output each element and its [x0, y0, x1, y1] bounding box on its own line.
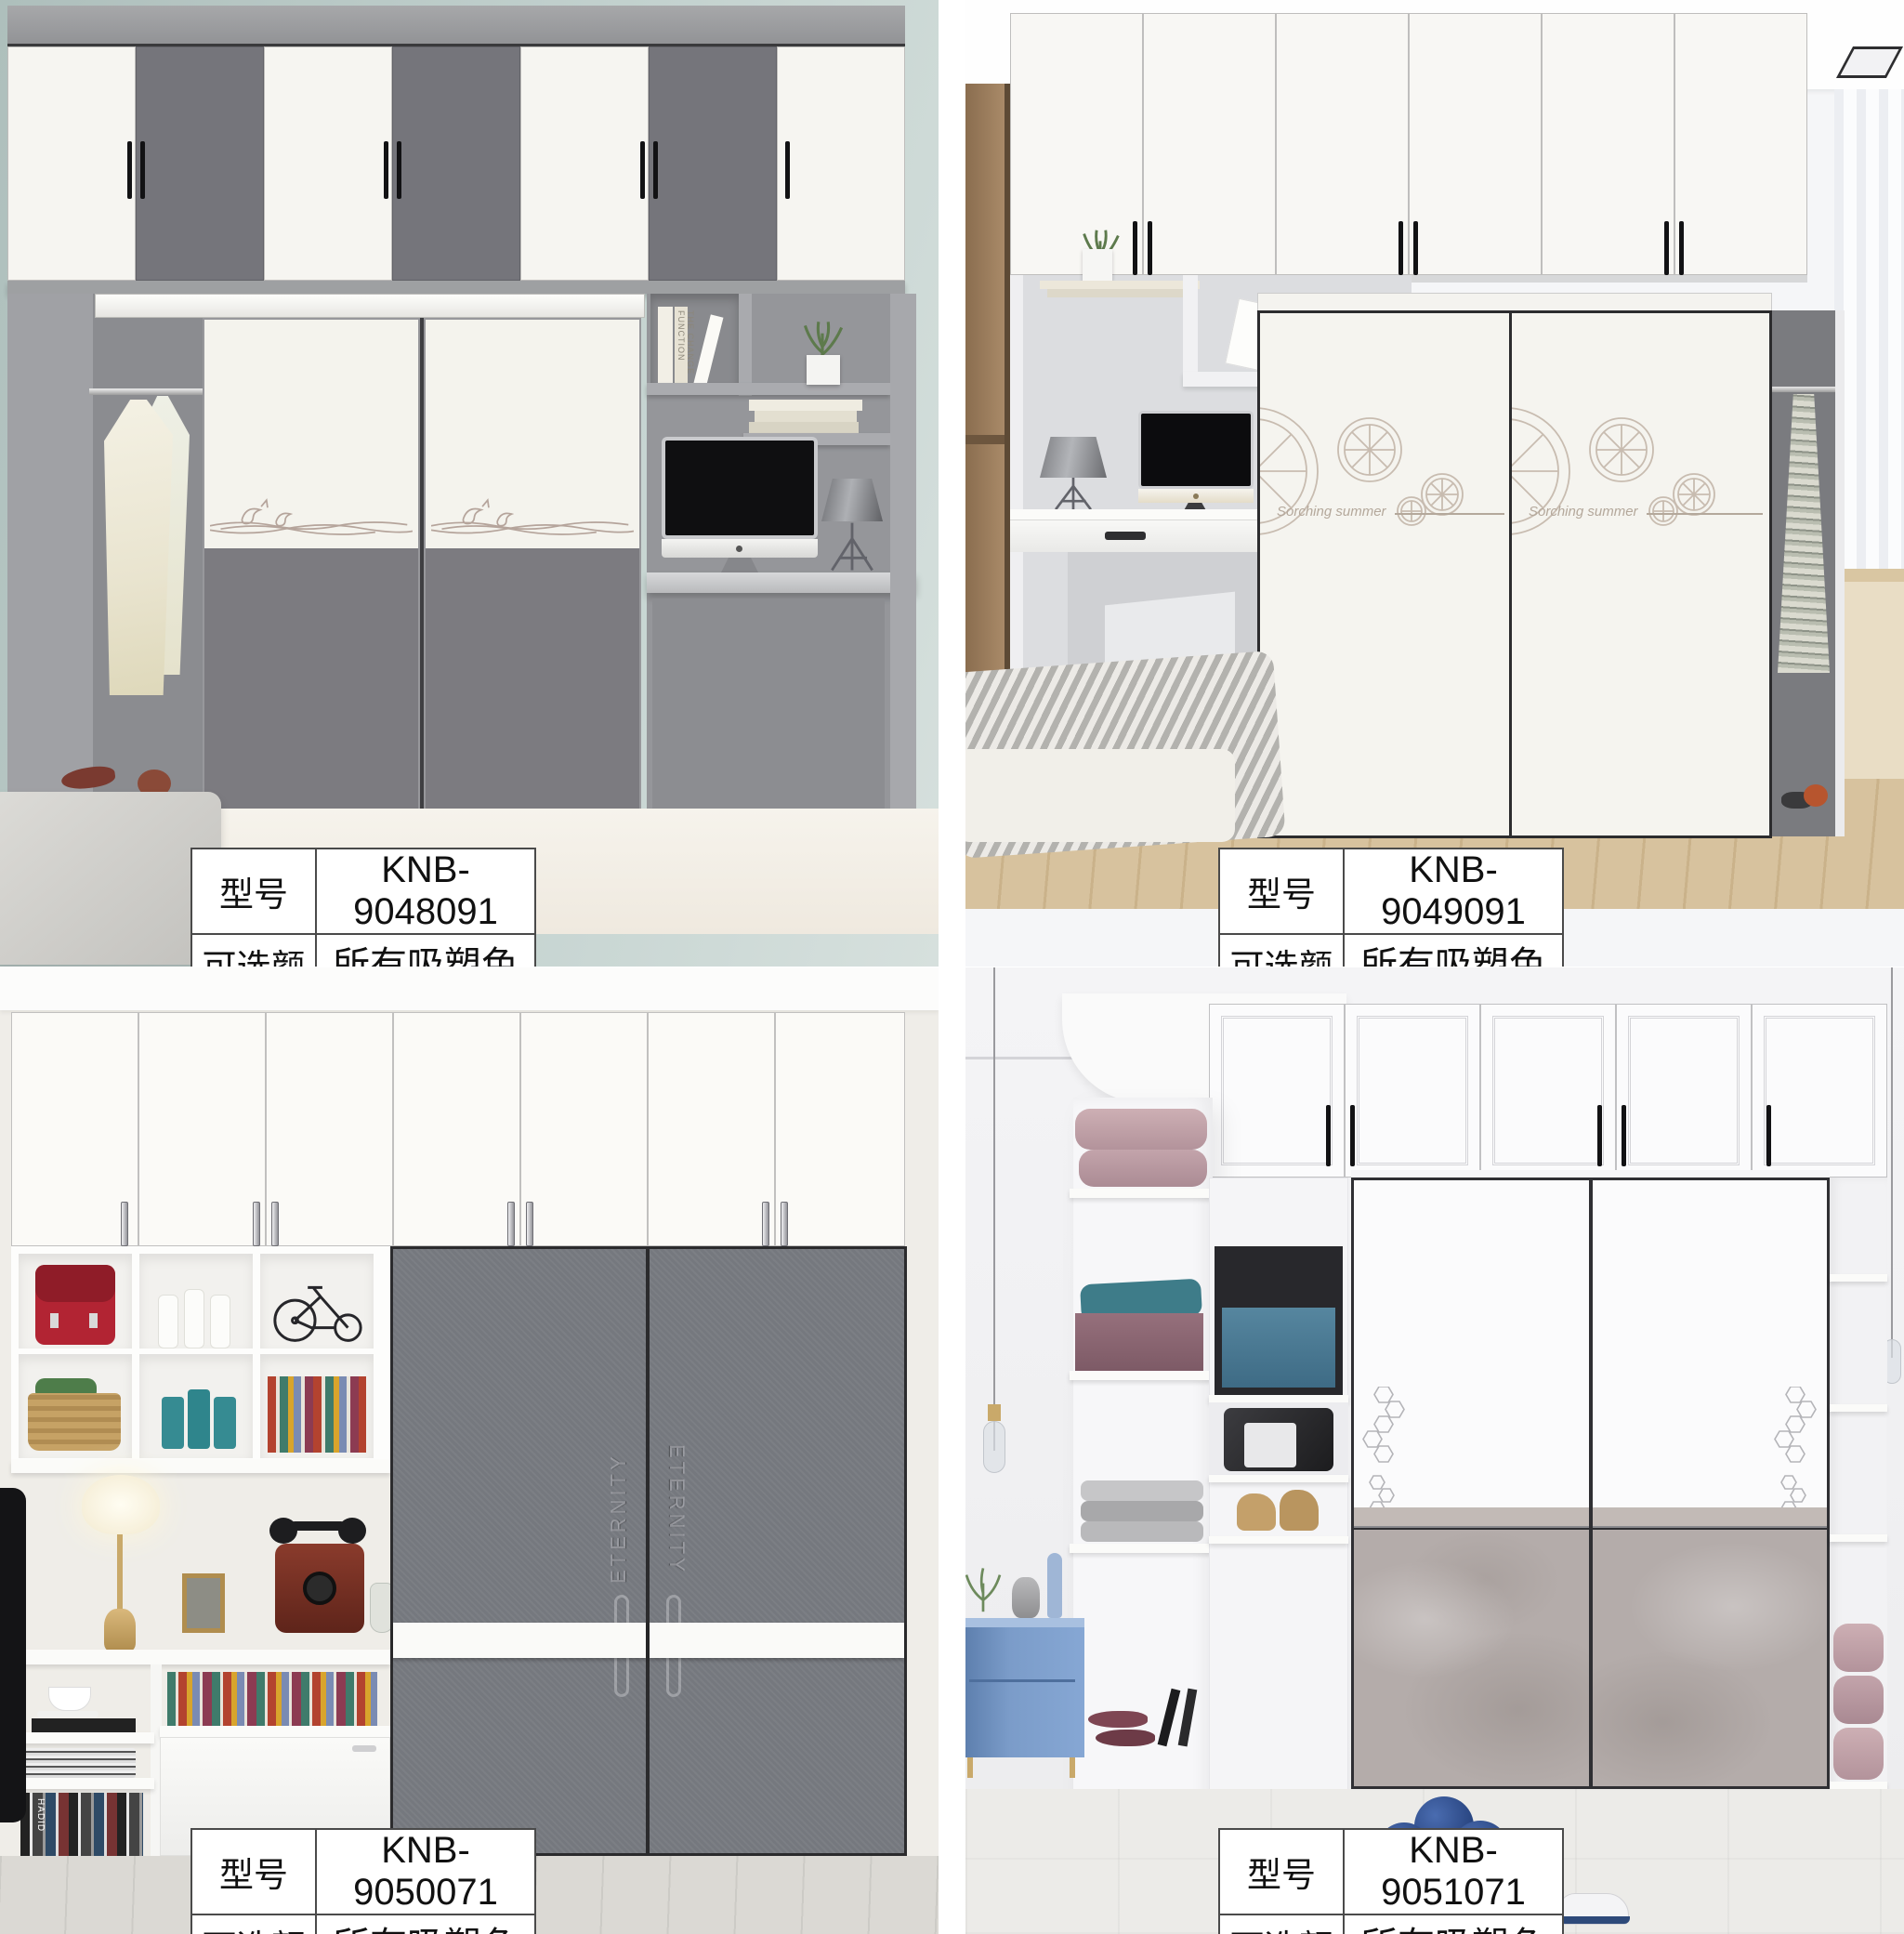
telephone-body — [275, 1544, 364, 1633]
q2-shelf-divider — [1183, 275, 1198, 387]
q4-right-board — [1830, 1782, 1887, 1789]
q3-cubby — [139, 1254, 253, 1349]
q2-upper-door — [1542, 13, 1674, 275]
q4-sliding-door-left — [1354, 1180, 1589, 1786]
pillow — [1833, 1728, 1884, 1780]
q3-cubby — [260, 1254, 374, 1349]
q1-bed — [0, 792, 221, 965]
q1-cornice — [7, 6, 905, 46]
loafer-shoe — [1096, 1730, 1155, 1746]
q2-side-desk-top — [1837, 569, 1904, 582]
vase — [1012, 1577, 1040, 1618]
desk-lamp-legs — [1042, 478, 1105, 511]
table-lamp-shade — [82, 1475, 160, 1534]
q3-unit-bottom-board — [11, 1460, 390, 1473]
q4-tower-board — [1070, 1371, 1213, 1380]
q1-shelf-board — [647, 383, 890, 395]
q3-upper-door — [648, 1012, 775, 1246]
sneaker — [1558, 1893, 1629, 1925]
heel-shoe — [1237, 1493, 1276, 1531]
book — [658, 307, 673, 385]
q3-sliding-door-right: ETERNITY — [650, 1249, 904, 1853]
door-caption-line — [1395, 513, 1504, 515]
q1-side-panel-right — [890, 294, 916, 814]
apple-logo-icon — [1193, 493, 1199, 499]
q2-bed-sheet — [965, 749, 1235, 842]
spec-table-4: 型号 KNB-9051071 可选颜色 所有吸塑色卡 — [1218, 1828, 1564, 1934]
door-concrete-panel — [1354, 1530, 1589, 1786]
door-handle-icon — [1148, 221, 1152, 275]
q1-rug — [595, 820, 939, 929]
spec-model-label: 型号 — [1219, 849, 1344, 934]
spec-model-value: KNB-9051071 — [1344, 1829, 1563, 1914]
pillow — [1833, 1676, 1884, 1724]
door-inner-frame — [1221, 1016, 1333, 1165]
q2-shoe — [1804, 784, 1828, 807]
magazine-stack — [24, 1748, 136, 1778]
q2-side-desk — [1843, 582, 1904, 779]
door-inner-frame — [1764, 1016, 1875, 1165]
door-handle-icon — [1597, 1105, 1602, 1166]
desk-lamp-shade — [1040, 437, 1107, 478]
q1-door-gray-panel — [204, 548, 418, 823]
q2-upper-door — [1143, 13, 1276, 275]
door-handle-icon — [653, 141, 658, 199]
q4-column-board — [1209, 1536, 1348, 1544]
spec-table-1: 型号 KNB-9048091 可选颜色 所有吸塑色卡 — [190, 848, 536, 967]
nightstand-leg — [1070, 1757, 1075, 1778]
pendant-wire — [993, 967, 995, 1451]
imac-chin — [662, 539, 818, 558]
q1-book-cubby: THE CHANGE FUNCTION — [650, 294, 739, 385]
nightstand-leg — [967, 1757, 973, 1778]
door-handle-icon — [397, 141, 401, 199]
q3-shelf-board — [160, 1726, 390, 1737]
q4-column-board — [1209, 1395, 1348, 1402]
vase — [158, 1295, 178, 1349]
door-handle-icon — [640, 141, 645, 199]
door-caption-line — [1647, 513, 1763, 515]
door-inner-frame — [1492, 1016, 1604, 1165]
q1-upper-door — [264, 46, 392, 281]
door-handle-icon — [1398, 221, 1403, 275]
q4-upper-door — [1480, 1004, 1616, 1178]
door-caption: Sorching summer — [1277, 504, 1386, 520]
door-handle-icon — [1622, 1105, 1626, 1166]
q3-cubby — [19, 1254, 132, 1349]
citrus-art-icon — [1260, 401, 1492, 541]
citrus-art-icon — [1512, 401, 1744, 541]
spec-model-value: KNB-9049091 — [1344, 849, 1563, 934]
q3-ceiling — [0, 967, 939, 1010]
product-card-1: THE CHANGE FUNCTION 型号 KNB-9048091 可选颜色 — [0, 0, 939, 967]
q3-headboard — [0, 1488, 26, 1822]
table-lamp-stem — [117, 1534, 123, 1611]
loafer-shoe — [1088, 1711, 1148, 1728]
q1-upper-door — [7, 46, 136, 281]
spec-color-value: 所有吸塑色卡 — [316, 934, 535, 967]
q2-upper-door — [1409, 13, 1542, 275]
drawer-handle-icon — [1105, 532, 1146, 540]
door-handle-icon — [121, 1202, 128, 1246]
canister — [214, 1397, 236, 1449]
spec-color-label: 可选颜色 — [1219, 934, 1344, 967]
pendant-cap — [988, 1404, 1001, 1421]
spec-color-label: 可选颜色 — [191, 1914, 316, 1934]
pillow — [1833, 1624, 1884, 1672]
book: THE CHANGE FUNCTION — [675, 307, 688, 385]
books-row — [167, 1672, 377, 1726]
q4-bag-cubby — [1209, 1402, 1348, 1475]
q4-right-board — [1830, 1274, 1887, 1282]
pendant-wire — [1891, 967, 1893, 1358]
q1-upper-door — [136, 46, 264, 281]
q3-console-board — [11, 1650, 390, 1664]
q3-upper-door — [11, 1012, 138, 1246]
q2-sliding-door-right: Sorching summer — [1512, 313, 1769, 835]
q4-tower-board — [1070, 1544, 1213, 1553]
basket — [28, 1393, 121, 1451]
books-row — [268, 1376, 366, 1453]
table-lamp-base — [104, 1609, 136, 1651]
drawer-handle-icon — [352, 1745, 376, 1752]
nightstand-drawer-line — [969, 1679, 1075, 1682]
backpack-buckle — [50, 1313, 59, 1328]
plant-pot — [807, 355, 840, 385]
q3-cubby — [139, 1354, 253, 1458]
dolphin-art-icon — [210, 485, 413, 548]
spec-color-value: 所有吸塑色卡 — [1344, 934, 1563, 967]
plant-pot — [1083, 249, 1112, 281]
product-card-4: 型号 KNB-9051071 可选颜色 所有吸塑色卡 — [965, 967, 1904, 1934]
q3-upper-door — [393, 1012, 520, 1246]
handbag — [1224, 1408, 1333, 1471]
door-brand-text: ETERNITY — [664, 1444, 689, 1584]
q3-upper-door — [266, 1012, 393, 1246]
q4-tower-board — [1070, 1189, 1213, 1198]
imac-chin — [1138, 489, 1254, 503]
spec-model-value: KNB-9050071 — [316, 1829, 535, 1914]
spec-color-label: 可选颜色 — [191, 934, 316, 967]
bicycle-icon — [268, 1269, 368, 1347]
q2-hanging-rod — [1772, 387, 1835, 392]
q2-book-stack — [1047, 289, 1192, 297]
q1-sliding-door-right — [424, 318, 641, 825]
door-handle-icon — [1350, 1105, 1355, 1166]
q1-door-track — [95, 294, 645, 318]
q1-book-stack — [749, 400, 862, 411]
q1-book-stack — [755, 411, 857, 422]
vase — [184, 1289, 204, 1349]
door-handle-icon — [271, 1202, 279, 1246]
dolphin-art-icon — [431, 485, 634, 548]
sneaker-sole — [1559, 1916, 1630, 1924]
q4-dark-cubby — [1215, 1246, 1343, 1395]
q1-shelf-divider — [739, 294, 752, 396]
door-handle-icon — [762, 1202, 769, 1246]
towel — [1081, 1521, 1203, 1542]
q1-door-gray-panel — [426, 548, 639, 823]
door-brand-text: ETERNITY — [607, 1444, 631, 1584]
teacup — [48, 1687, 91, 1711]
q3-upper-door — [138, 1012, 266, 1246]
q2-wood-panel-line — [965, 435, 1005, 444]
q3-cubby — [260, 1354, 374, 1458]
product-card-3: HADID ETERNITY ETERNITY 型号 KNB-9050071 可… — [0, 967, 939, 1934]
handbag-panel — [1244, 1423, 1296, 1467]
q4-upper-door — [1345, 1004, 1480, 1178]
door-handle-icon — [384, 141, 388, 199]
q4-right-board — [1830, 1534, 1887, 1542]
q1-sliding-door-left — [203, 318, 420, 825]
backpack — [35, 1265, 115, 1345]
q4-sliding-door-right — [1593, 1180, 1827, 1786]
vase — [210, 1295, 230, 1349]
door-handle-icon — [526, 1202, 533, 1246]
q3-shelf-board — [11, 1778, 154, 1789]
pillow — [1079, 1150, 1207, 1187]
q4-right-board — [1830, 1404, 1887, 1412]
book-leaning — [693, 314, 723, 388]
door-band — [1593, 1507, 1827, 1528]
q1-shelf-trim — [7, 281, 905, 294]
book-spine-text: THE CHANGE FUNCTION — [676, 310, 695, 383]
door-handle-icon — [127, 141, 132, 199]
spec-table-2: 型号 KNB-9049091 可选颜色 所有吸塑色卡 — [1218, 848, 1564, 967]
q1-upper-door — [392, 46, 520, 281]
q1-upper-door — [777, 46, 905, 281]
door-handle-icon — [253, 1202, 260, 1246]
towel — [1081, 1480, 1203, 1501]
door-handle-icon — [1766, 1105, 1771, 1166]
plant-icon — [965, 1559, 1008, 1618]
towel — [1081, 1501, 1203, 1521]
door-concrete-panel — [1593, 1530, 1827, 1786]
q2-niche-panel — [1835, 310, 1845, 836]
books-row: HADID — [20, 1793, 143, 1856]
spec-color-label: 可选颜色 — [1219, 1914, 1344, 1934]
backpack-buckle — [89, 1313, 98, 1328]
mauve-box — [1075, 1313, 1203, 1371]
q1-upper-door — [520, 46, 649, 281]
canister — [162, 1397, 184, 1449]
door-caption: Sorching summer — [1529, 504, 1638, 520]
q2-curtain — [1834, 89, 1904, 572]
door-band — [1354, 1507, 1589, 1528]
q2-sliding-door-left: Sorching summer — [1260, 313, 1509, 835]
blue-storage-box — [1222, 1308, 1335, 1388]
nightstand-top — [965, 1618, 1084, 1627]
q1-desk-top — [647, 572, 916, 593]
q4-upper-door — [1209, 1004, 1345, 1178]
pendant-lamp-icon — [983, 1421, 1005, 1473]
door-inner-frame — [1628, 1016, 1740, 1165]
door-handle-icon — [1679, 221, 1684, 275]
imac-screen — [1138, 411, 1254, 489]
q1-upper-door — [649, 46, 777, 281]
spec-table-3: 型号 KNB-9050071 可选颜色 所有吸塑色卡 — [190, 1828, 536, 1934]
telephone-handset — [269, 1518, 366, 1544]
telephone-dial — [303, 1572, 336, 1605]
door-handle-icon — [1413, 221, 1418, 275]
door-handle-icon — [785, 141, 790, 199]
spec-model-label: 型号 — [191, 1829, 316, 1914]
q2-book-stack — [1040, 281, 1200, 289]
door-white-band — [650, 1623, 904, 1658]
door-handle-icon — [507, 1202, 515, 1246]
door-handle-icon — [1326, 1105, 1331, 1166]
spec-model-label: 型号 — [191, 849, 316, 934]
q1-side-panel — [7, 294, 93, 814]
heel-shoe — [1280, 1490, 1319, 1531]
apple-logo-icon — [736, 546, 742, 552]
backpack-flap — [35, 1265, 115, 1302]
q3-shelf-board — [11, 1732, 154, 1743]
q3-upper-door — [520, 1012, 648, 1246]
q1-book-stack — [749, 422, 859, 433]
door-handle-icon — [1133, 221, 1137, 275]
black-book — [32, 1718, 136, 1732]
q3-cubby — [19, 1354, 132, 1458]
saucer — [37, 1711, 98, 1717]
door-handle-icon — [781, 1202, 788, 1246]
q3-upper-door — [775, 1012, 905, 1246]
q3-sliding-door-left: ETERNITY — [393, 1249, 646, 1853]
spec-color-value: 所有吸塑色卡 — [1344, 1914, 1563, 1934]
q1-hanging-rod — [89, 388, 203, 395]
imac-screen — [662, 437, 818, 539]
door-inner-frame — [1357, 1016, 1468, 1165]
spec-model-label: 型号 — [1219, 1829, 1344, 1914]
door-handle-icon — [1664, 221, 1669, 275]
canister — [188, 1389, 210, 1449]
pillow — [1075, 1109, 1207, 1150]
magazine-spine-text: HADID — [35, 1798, 46, 1850]
door-handle-icon — [140, 141, 145, 199]
q1-desk-knee-space — [652, 599, 885, 809]
desk-lamp-legs — [821, 521, 883, 573]
vase — [1047, 1553, 1062, 1618]
q4-upper-door — [1752, 1004, 1887, 1178]
product-card-2: THE CHANGE FUNCTION — [965, 0, 1904, 967]
q4-upper-door — [1616, 1004, 1752, 1178]
photo-frame — [182, 1573, 225, 1633]
spec-color-value: 所有吸塑色卡 — [316, 1914, 535, 1934]
q2-upper-door — [1674, 13, 1807, 275]
q1-hanging-dress — [104, 400, 173, 695]
q4-column-board — [1209, 1475, 1348, 1482]
spec-model-value: KNB-9048091 — [316, 849, 535, 934]
q2-upper-door — [1276, 13, 1409, 275]
handset-bar — [290, 1521, 346, 1531]
nightstand — [965, 1618, 1084, 1757]
door-white-band — [393, 1623, 646, 1658]
q2-door-track — [1257, 293, 1772, 311]
